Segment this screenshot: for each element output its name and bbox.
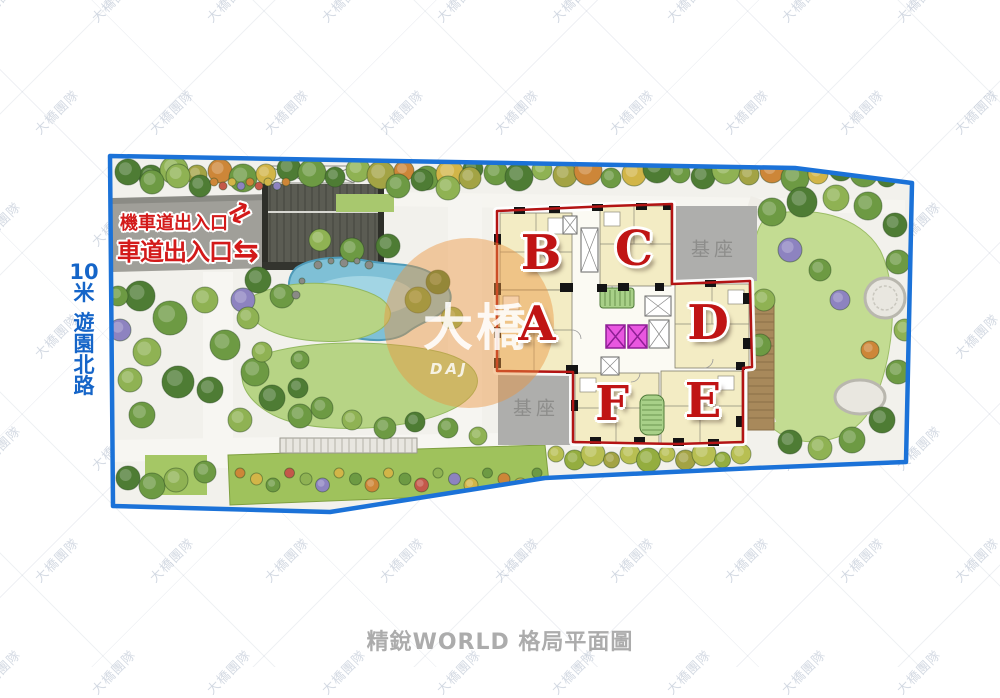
street-label: 10 米 遊 園 北 路 [66,262,102,397]
street-char: 北 [74,355,95,376]
street-char: 園 [74,334,95,355]
unit-label-c: C [615,225,653,273]
unit-label-b: B [521,229,562,277]
street-char: 路 [74,376,95,397]
unit-label-a: A [518,300,555,348]
car-entrance-arrows-icon: ⇆ [233,233,259,269]
street-char: 10 [69,262,98,283]
page-title: 精銳WORLD 格局平面圖 [0,624,1000,656]
street-char: 遊 [74,313,95,334]
car-entrance-label: 車道出入口 [117,232,232,267]
unit-label-d: D [687,299,729,347]
pedestal-label-bottom: 基座 [513,394,559,421]
unit-label-f: F [595,380,629,428]
street-char: 米 [74,283,95,304]
pedestal-label-top: 基座 [691,235,737,262]
watermark-logo-text: 大橋 [423,288,529,360]
watermark-logo-subtext: DAJ [430,360,469,378]
unit-label-e: E [685,377,722,425]
pergola [280,438,417,453]
